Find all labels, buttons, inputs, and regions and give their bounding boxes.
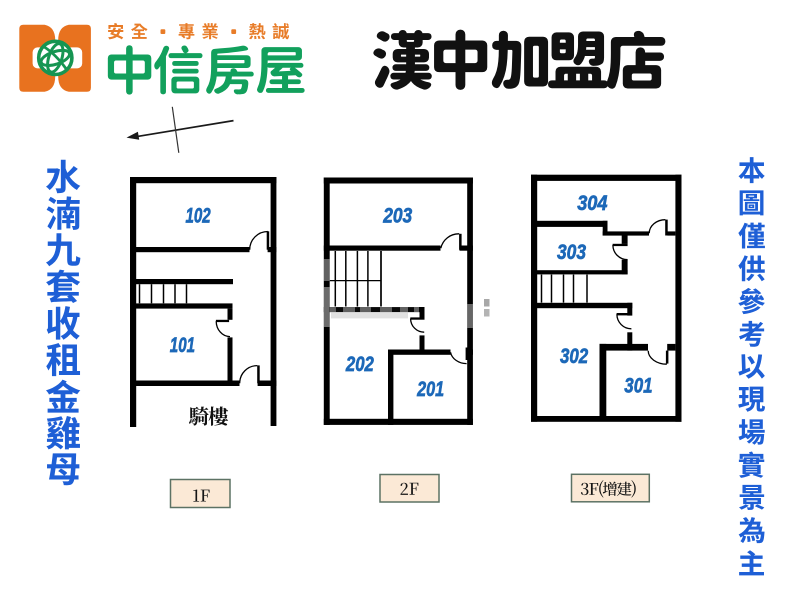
svg-text:101: 101 [170, 333, 195, 357]
svg-text:102: 102 [186, 203, 211, 227]
svg-text:202: 202 [345, 352, 374, 376]
svg-text:302: 302 [560, 344, 588, 368]
svg-text:304: 304 [577, 191, 607, 215]
svg-text:203: 203 [382, 204, 412, 228]
svg-text:201: 201 [416, 377, 444, 401]
svg-text:301: 301 [624, 373, 652, 397]
svg-text:303: 303 [557, 240, 586, 264]
